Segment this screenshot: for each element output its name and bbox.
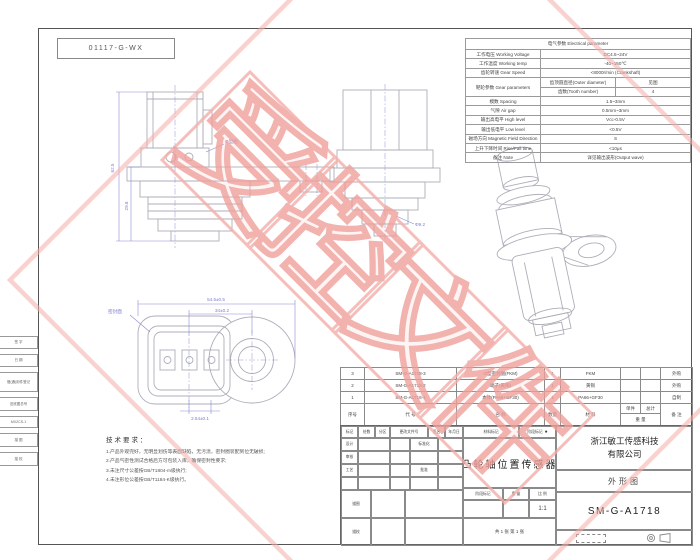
sig-blank: [358, 451, 390, 464]
bom-header-ws: 单件: [621, 404, 641, 414]
table-row: 靶轮参数 Gear parameters齿顶圆直径(Outer diameter…: [466, 78, 691, 87]
bom-no: 3: [341, 368, 365, 380]
elec-value: -40~150℃: [541, 59, 691, 68]
elec-value: Vcc-0.5V: [541, 115, 691, 124]
bom-material: 黄铜: [561, 380, 621, 392]
sig-header: 更改文件号: [390, 426, 428, 438]
elec-label: 输出低电平 Low level: [466, 125, 541, 134]
stage-mark-text: 阶段标记: [527, 430, 542, 435]
sig-blank: [390, 464, 410, 477]
elec-label: 工作温度 Working temp: [466, 59, 541, 68]
strip-cell: 描 图: [0, 433, 38, 447]
scale-header: 比 例: [529, 488, 556, 500]
notes-title: 技术要求：: [106, 434, 356, 444]
sig-header: 分区: [375, 426, 390, 438]
technical-notes: 技术要求： 1.产品外观完好，无明显划伤等表面缺陷，无污渍，密封圈装配到位无破损…: [106, 434, 356, 485]
dim-probe-dia: Φ9.2: [415, 222, 425, 227]
version-box: [576, 534, 606, 543]
company-name: 浙江敏工传感科技 有限公司: [556, 426, 693, 470]
elec-value: 齿顶圆直径(Outer diameter): [541, 78, 616, 87]
title-block: 标记 处数 分区 更改文件号 签名 年月日 设计 标准化 审核 工艺 批准 描图…: [340, 425, 692, 545]
sig-blank: [405, 490, 463, 518]
bom-qty: 1: [545, 368, 561, 380]
elec-label: 备注 Note: [466, 153, 541, 162]
left-margin-strip: 签 字 日 期 借(通)用件登记 旧底图总号 MXZCS-1 描 图 描 校: [0, 336, 38, 471]
strip-cell: MXZCS-1: [0, 416, 38, 428]
dim-height-total: 62.5: [110, 163, 115, 172]
bom-wt: [641, 368, 661, 380]
note-line: 1.产品外观完好，无明显划伤等表面缺陷，无污渍，密封圈装配到位无破损;: [106, 448, 356, 457]
table-row: 3SM-G-A1718-3O型密封圈(FKM)1FKM外购: [341, 368, 693, 380]
sig-blank: [410, 477, 438, 490]
table-row: 上升下降时间 Rise/Fall time<10μs: [466, 143, 691, 152]
table-row: 工作温度 Working temp-40~150℃: [466, 59, 691, 68]
elec-value: <10μs: [541, 143, 691, 152]
sig-blank: [390, 477, 410, 490]
note-line: 4.未注形位公差按GB/T1184-K级执行。: [106, 476, 356, 485]
doc-code-box: 01117-G-WX: [57, 38, 175, 59]
bom-qty: 1: [545, 380, 561, 392]
bom-header-no: 序号: [341, 404, 365, 426]
bom-wt: [641, 380, 661, 392]
sig-blank: [405, 518, 463, 546]
drawing-type: 外形图: [556, 470, 693, 492]
strip-cell: 签 字: [0, 336, 38, 349]
bom-wt: [641, 392, 661, 404]
bom-code: SM-G-A1718-3: [365, 368, 457, 380]
strip-cell: 旧底图总号: [0, 397, 38, 411]
sig-label-proof: 描校: [341, 518, 371, 546]
stage-header: 阶段标记: [463, 488, 503, 500]
bom-ws: [621, 368, 641, 380]
elec-title: 电气参数 Electrical parameter: [466, 39, 691, 50]
table-row: 输出高电平 High levelVcc-0.5V: [466, 115, 691, 124]
table-row: 备注 Note详见输出波形(Output wave): [466, 153, 691, 162]
view-bottom: 54.5±0.5 34±0.2 密封面 2.54±0.1: [108, 297, 295, 421]
note-line: 2.产品气密性测试合格后方可包装入库，确保密封性要求;: [106, 457, 356, 466]
table-row: 电气参数 Electrical parameter: [466, 39, 691, 50]
electrical-parameters-table: 电气参数 Electrical parameter 工作电压 Working V…: [465, 38, 691, 163]
part-name: 凸轮轴位置传感器: [463, 438, 556, 488]
sig-blank: [358, 464, 390, 477]
elec-value: <0.5V: [541, 125, 691, 134]
sheet-count: 共 1 张 第 1 张: [463, 518, 556, 546]
table-row: 齿轮转速 Gear Speed<8000r/min (Crankshaft): [466, 68, 691, 77]
sig-label-trace: 描图: [341, 490, 371, 518]
doc-code: 01117-G-WX: [89, 45, 144, 52]
table-row: 模数 Spacing1.5~3mm: [466, 96, 691, 105]
table-row: 2SM-G-A1718-2端子(黄铜)1黄铜外购: [341, 380, 693, 392]
sig-blank: [438, 451, 463, 464]
bom-qty: 1: [545, 392, 561, 404]
projection-symbol-icon: [643, 532, 673, 544]
bom-ws: [621, 392, 641, 404]
note-line: 3.未注尺寸公差按GB/T1804-m级执行;: [106, 467, 356, 476]
bom-material: PA66+GF30: [561, 392, 621, 404]
elec-value: DC4.5~24V: [541, 50, 691, 59]
elec-label: 磁场方向 Magnetic Field Direction: [466, 134, 541, 143]
sig-header: 年月日: [445, 426, 463, 438]
elec-value: S: [541, 134, 691, 143]
table-row: 气隙 Air gap0.5mm~3mm: [466, 106, 691, 115]
sig-blank: [371, 518, 405, 546]
table-row: 序号代 号名 称数量材 料单件总计备 注: [341, 404, 693, 414]
table-row: 输出低电平 Low level<0.5V: [466, 125, 691, 134]
bom-ws: [621, 380, 641, 392]
elec-label: 齿轮转速 Gear Speed: [466, 68, 541, 77]
bom-table: 3SM-G-A1718-3O型密封圈(FKM)1FKM外购 2SM-G-A171…: [340, 367, 693, 426]
elec-value: <8000r/min (Crankshaft): [541, 68, 691, 77]
weight-header: 重 量: [503, 488, 529, 500]
bom-header-name: 名 称: [457, 404, 545, 426]
sig-header: 签名: [428, 426, 445, 438]
sig-blank: [410, 451, 438, 464]
strip-cell: 日 期: [0, 354, 38, 367]
sig-blank: [438, 438, 463, 451]
view-side: 62.5 29.8 O型圈: [110, 85, 334, 248]
bom-no: 2: [341, 380, 365, 392]
elec-value: 0.5mm~3mm: [541, 106, 691, 115]
dim-width-total: 54.5±0.5: [207, 297, 225, 302]
bom-part-name: O型密封圈(FKM): [457, 368, 545, 380]
bom-header-note: 备 注: [661, 404, 693, 426]
elec-label: 上升下降时间 Rise/Fall time: [466, 143, 541, 152]
elec-extra: 4: [616, 87, 691, 96]
bom-note: 自制: [661, 392, 693, 404]
bom-material: FKM: [561, 368, 621, 380]
elec-label: 靶轮参数 Gear parameters: [466, 78, 541, 97]
stage-dot: ●: [545, 429, 548, 435]
dim-height-lower: 29.8: [124, 201, 129, 210]
elec-value: 详见输出波形(Output wave): [541, 153, 691, 162]
sig-blank: [390, 438, 410, 451]
stage-mark-label: 阶段标记●: [519, 426, 556, 438]
bom-code: SM-G-A1718-1: [365, 392, 457, 404]
sig-label-standard: 标准化: [410, 438, 438, 451]
sig-blank: [390, 451, 410, 464]
sig-blank: [438, 464, 463, 477]
company-line1: 浙江敏工传感科技: [590, 435, 658, 448]
scale-value: 1:1: [529, 500, 556, 518]
strip-cell: 描 校: [0, 452, 38, 466]
elec-value: 齿数(Tooth number): [541, 87, 616, 96]
material-mark-label: 材料标记: [463, 426, 519, 438]
bom-no: 1: [341, 392, 365, 404]
bom-header-code: 代 号: [365, 404, 457, 426]
stage-value: [463, 500, 503, 518]
bom-header-weight: 重 量: [621, 414, 661, 426]
view-isometric: [476, 132, 631, 344]
elec-extra: 见图: [616, 78, 691, 87]
bom-part-name: 端子(黄铜): [457, 380, 545, 392]
drawing-sheet: 62.5 29.8 O型圈 Φ9.2: [0, 0, 700, 560]
table-row: 1SM-G-A1718-1本体(PA66+GF30)1PA66+GF30自制: [341, 392, 693, 404]
dim-hole-center: 34±0.2: [215, 308, 229, 313]
bom-note: 外购: [661, 368, 693, 380]
sig-blank: [358, 438, 390, 451]
elec-label: 模数 Spacing: [466, 96, 541, 105]
bom-header-wt: 总计: [641, 404, 661, 414]
bom-part-name: 本体(PA66+GF30): [457, 392, 545, 404]
strip-cell: 借(通)用件登记: [0, 372, 38, 392]
sig-blank: [438, 477, 463, 490]
sig-header: 处数: [358, 426, 375, 438]
projection-row: [556, 530, 693, 546]
dim-leader-seal: 密封面: [108, 308, 122, 315]
drawing-number: SM-G-A1718: [556, 492, 693, 530]
sig-blank: [371, 490, 405, 518]
bom-header-material: 材 料: [561, 404, 621, 426]
view-front: Φ9.2: [330, 84, 440, 242]
elec-label: 气隙 Air gap: [466, 106, 541, 115]
company-line2: 有限公司: [607, 448, 641, 461]
bom-header-qty: 数量: [545, 404, 561, 426]
bom-code: SM-G-A1718-2: [365, 380, 457, 392]
sig-label-approve: 批准: [410, 464, 438, 477]
table-row: 工作电压 Working VoltageDC4.5~24V: [466, 50, 691, 59]
bom-note: 外购: [661, 380, 693, 392]
sig-blank: [358, 477, 390, 490]
dim-pin-pitch: 2.54±0.1: [191, 416, 209, 421]
elec-label: 输出高电平 High level: [466, 115, 541, 124]
elec-value: 1.5~3mm: [541, 96, 691, 105]
elec-label: 工作电压 Working Voltage: [466, 50, 541, 59]
dim-leader-oring: O型圈: [225, 138, 238, 145]
weight-value: [503, 500, 529, 518]
table-row: 磁场方向 Magnetic Field DirectionS: [466, 134, 691, 143]
